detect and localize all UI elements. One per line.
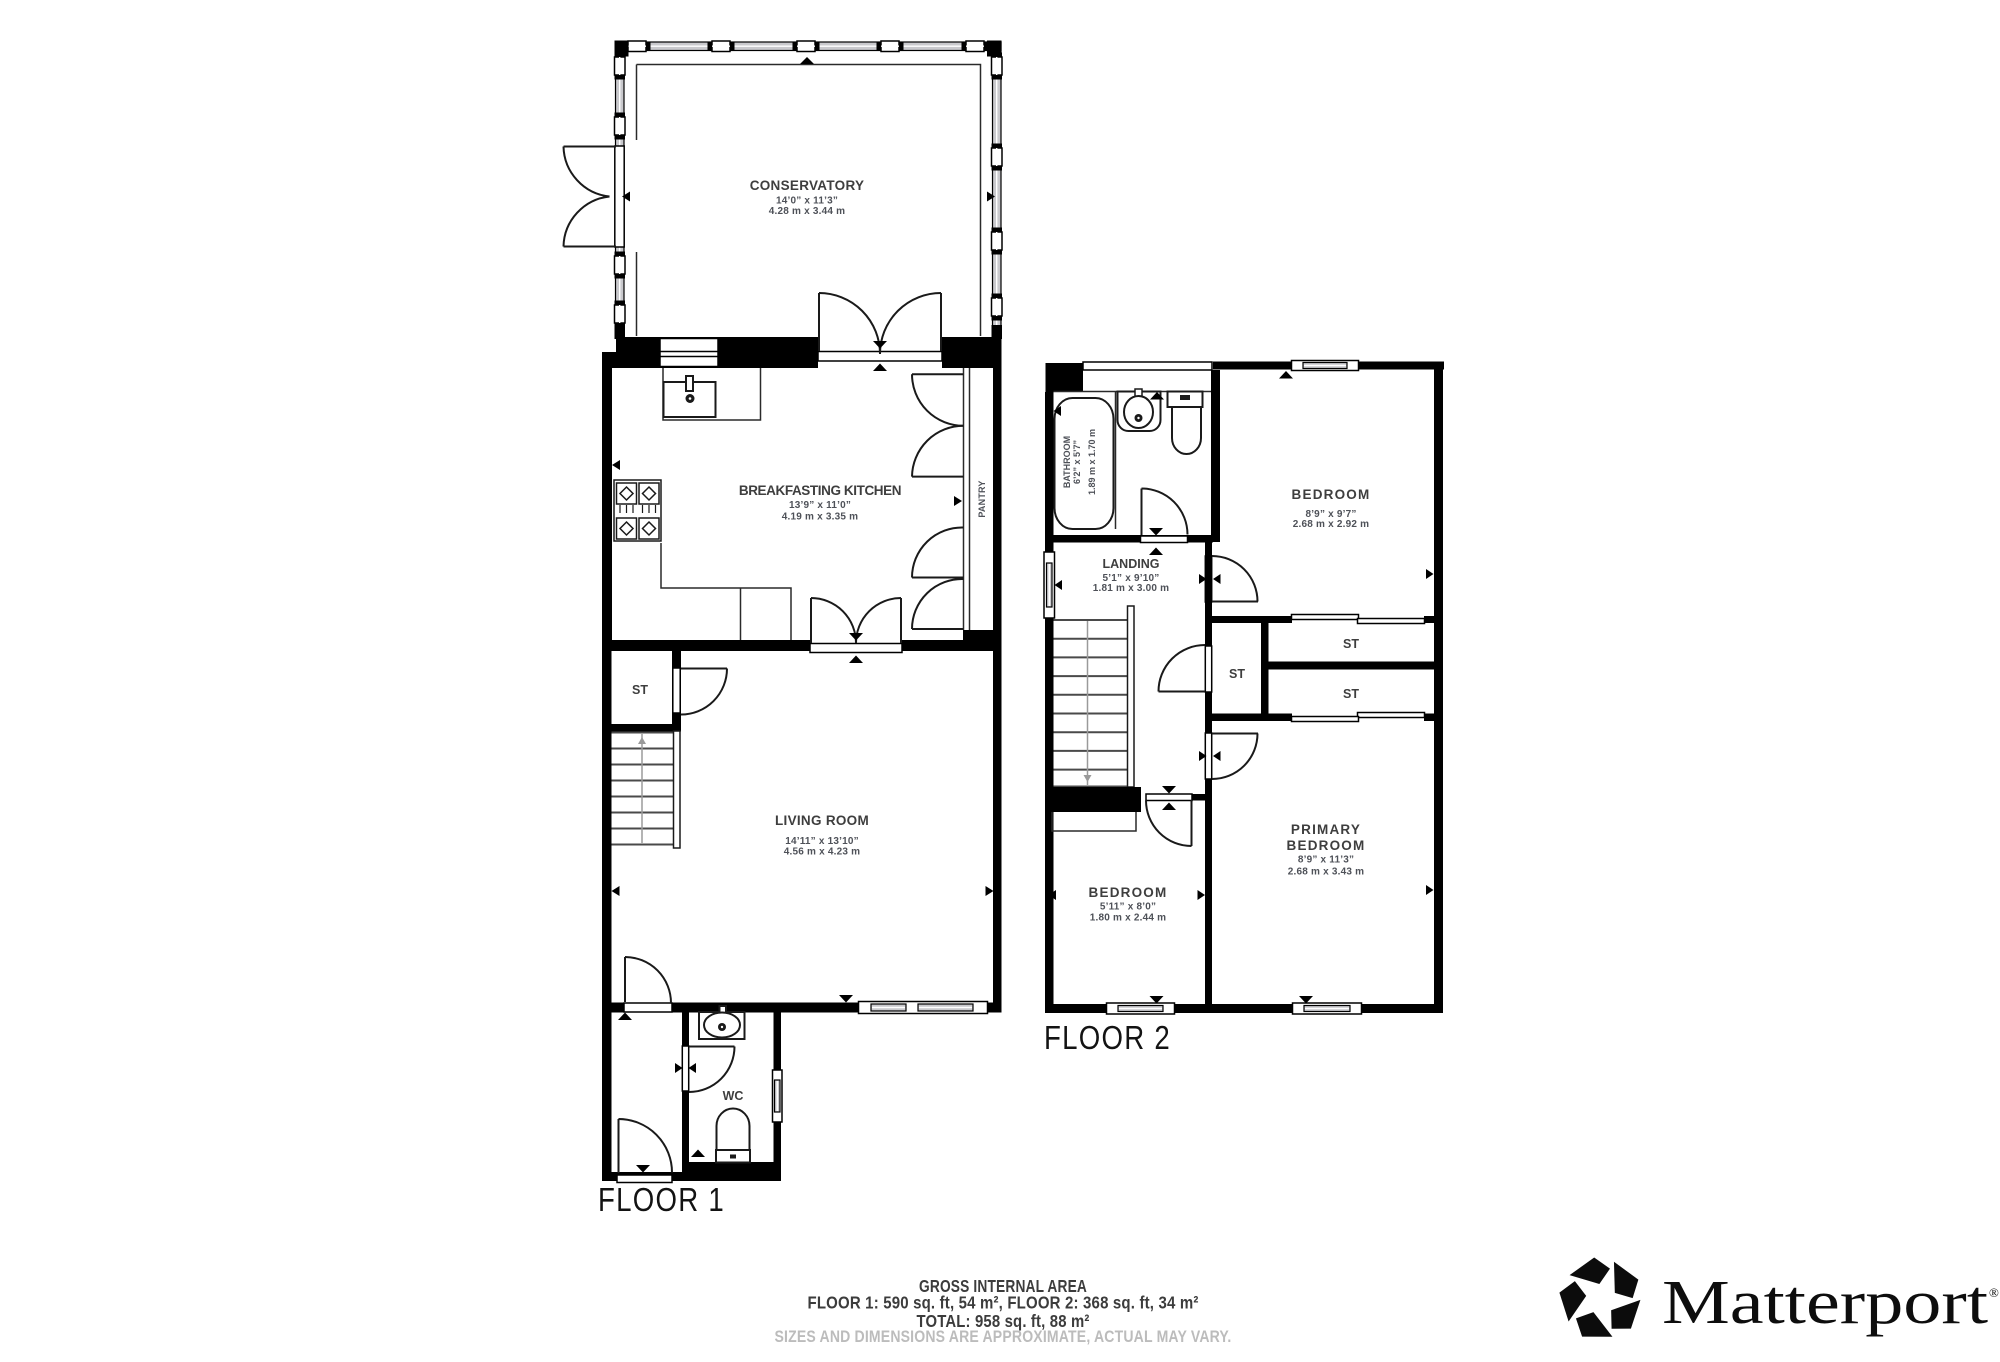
svg-text:4.56 m x 4.23 m: 4.56 m x 4.23 m [784, 847, 860, 858]
svg-text:SIZES AND DIMENSIONS ARE APPRO: SIZES AND DIMENSIONS ARE APPROXIMATE, AC… [775, 1328, 1232, 1346]
svg-text:14’0” x 11’3”: 14’0” x 11’3” [776, 196, 838, 207]
svg-text:CONSERVATORY: CONSERVATORY [750, 178, 865, 193]
svg-text:ST: ST [1343, 637, 1359, 651]
svg-text:1.89 m x 1.70 m: 1.89 m x 1.70 m [1087, 429, 1097, 495]
svg-text:BREAKFASTING KITCHEN: BREAKFASTING KITCHEN [739, 483, 901, 498]
svg-text:LANDING: LANDING [1103, 557, 1160, 571]
svg-text:4.28 m x 3.44 m: 4.28 m x 3.44 m [769, 206, 845, 217]
svg-text:FLOOR 1: 590 sq. ft, 54 m², FL: FLOOR 1: 590 sq. ft, 54 m², FLOOR 2: 368… [808, 1293, 1199, 1313]
svg-text:BATHROOM: BATHROOM [1062, 436, 1072, 488]
svg-text:FLOOR 1: FLOOR 1 [598, 1181, 725, 1218]
svg-text:6’2” x 5’7”: 6’2” x 5’7” [1072, 440, 1082, 484]
svg-text:ST: ST [1229, 667, 1245, 681]
svg-text:14’11” x 13’10”: 14’11” x 13’10” [785, 836, 859, 847]
svg-text:PRIMARY: PRIMARY [1291, 822, 1361, 837]
svg-text:1.81 m x 3.00 m: 1.81 m x 3.00 m [1093, 583, 1169, 594]
svg-text:®: ® [1989, 1285, 1999, 1300]
svg-text:BEDROOM: BEDROOM [1089, 885, 1168, 900]
svg-text:2.68 m x 3.43 m: 2.68 m x 3.43 m [1288, 867, 1364, 878]
svg-text:FLOOR 2: FLOOR 2 [1044, 1019, 1171, 1056]
svg-text:4.19 m x 3.35 m: 4.19 m x 3.35 m [782, 512, 858, 523]
svg-text:LIVING ROOM: LIVING ROOM [775, 813, 869, 828]
svg-text:13’9” x 11’0”: 13’9” x 11’0” [789, 500, 851, 511]
svg-text:2.68 m x 2.92 m: 2.68 m x 2.92 m [1293, 519, 1369, 530]
svg-text:BEDROOM: BEDROOM [1287, 838, 1366, 853]
svg-text:ST: ST [1343, 687, 1359, 701]
svg-text:Matterport: Matterport [1662, 1269, 1988, 1337]
svg-text:WC: WC [723, 1089, 744, 1103]
svg-text:BEDROOM: BEDROOM [1292, 487, 1371, 502]
svg-text:ST: ST [632, 683, 648, 697]
svg-text:PANTRY: PANTRY [977, 480, 987, 517]
svg-text:1.80 m x 2.44 m: 1.80 m x 2.44 m [1090, 913, 1166, 924]
svg-text:5’11” x 8’0”: 5’11” x 8’0” [1100, 902, 1156, 913]
svg-text:8’9” x 11’3”: 8’9” x 11’3” [1298, 855, 1354, 866]
